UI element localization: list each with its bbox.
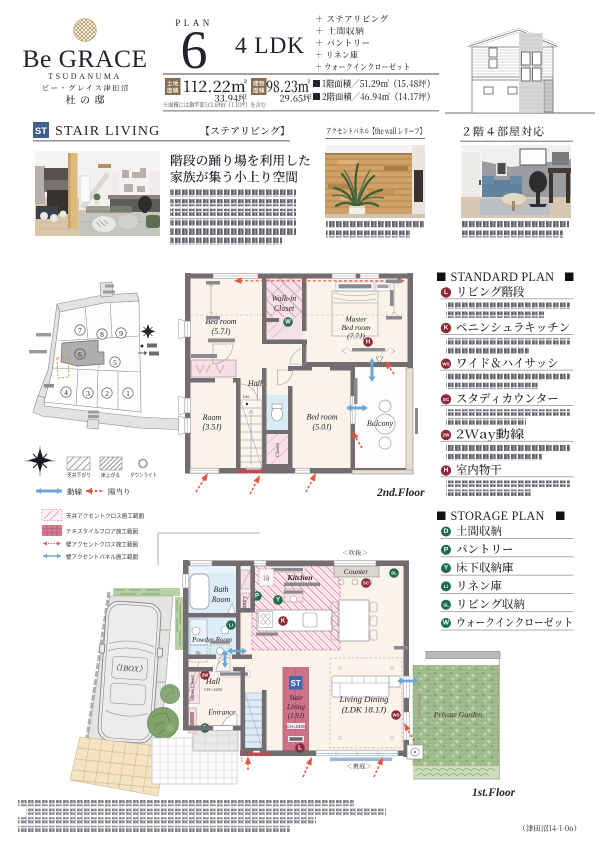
svg-text:W: W xyxy=(285,320,291,326)
svg-text:W: W xyxy=(443,620,450,627)
svg-text:3: 3 xyxy=(86,389,90,398)
svg-text:Stair: Stair xyxy=(289,694,303,702)
svg-text:4 LDK: 4 LDK xyxy=(235,33,305,59)
svg-text:STANDARD PLAN: STANDARD PLAN xyxy=(451,270,555,284)
svg-text:L: L xyxy=(444,289,448,296)
svg-text:8: 8 xyxy=(100,330,104,339)
svg-text:Be GRACE: Be GRACE xyxy=(22,44,147,73)
svg-text:SL: SL xyxy=(443,602,449,607)
svg-text:Private Garden: Private Garden xyxy=(433,710,483,719)
svg-text:P: P xyxy=(444,546,449,553)
svg-text:Hall: Hall xyxy=(247,379,263,388)
svg-text:Li: Li xyxy=(229,623,233,628)
svg-text:CH=2400: CH=2400 xyxy=(286,724,306,729)
svg-text:Balcony: Balcony xyxy=(367,419,394,428)
svg-text:(5.0J): (5.0J) xyxy=(313,423,332,432)
svg-text:(3.5J): (3.5J) xyxy=(203,423,222,432)
svg-text:Living Dining: Living Dining xyxy=(338,694,389,704)
svg-text:DN: DN xyxy=(243,394,249,399)
svg-text:Room: Room xyxy=(202,413,222,422)
svg-text:Counter: Counter xyxy=(344,567,369,576)
svg-text:Bath: Bath xyxy=(213,585,228,594)
svg-text:P: P xyxy=(255,594,259,600)
svg-text:SC: SC xyxy=(443,397,450,402)
svg-text:(7.7J): (7.7J) xyxy=(347,332,365,341)
svg-text:6: 6 xyxy=(181,20,208,80)
svg-text:STORAGE PLAN: STORAGE PLAN xyxy=(451,509,545,523)
svg-text:Shoes Closet: Shoes Closet xyxy=(191,675,196,701)
svg-text:5: 5 xyxy=(113,358,117,367)
svg-text:WS: WS xyxy=(393,713,400,718)
svg-text:2: 2 xyxy=(105,389,109,398)
svg-text:ST: ST xyxy=(35,126,47,137)
svg-text:2W: 2W xyxy=(202,673,208,678)
svg-text:SC: SC xyxy=(363,581,370,586)
svg-text:L: L xyxy=(298,746,302,752)
svg-text:Y: Y xyxy=(276,598,280,604)
svg-text:(LDK 18.1J): (LDK 18.1J) xyxy=(342,705,387,715)
svg-text:D: D xyxy=(444,528,449,535)
svg-text:Closet: Closet xyxy=(274,304,295,313)
svg-text:6: 6 xyxy=(78,350,82,359)
svg-text:4: 4 xyxy=(64,388,68,397)
svg-text:(1.9J): (1.9J) xyxy=(288,712,305,720)
svg-text:1st.Floor: 1st.Floor xyxy=(472,787,516,799)
svg-text:K: K xyxy=(444,325,449,332)
svg-text:STAIR LIVING: STAIR LIVING xyxy=(55,124,160,139)
svg-text:Living: Living xyxy=(286,703,305,711)
svg-text:Room: Room xyxy=(211,595,231,604)
svg-text:(5.7J): (5.7J) xyxy=(212,327,231,336)
svg-text:9: 9 xyxy=(119,329,123,338)
svg-text:2nd.Floor: 2nd.Floor xyxy=(376,487,425,499)
svg-text:H: H xyxy=(444,467,449,474)
svg-text:H: H xyxy=(366,340,370,346)
svg-text:ST: ST xyxy=(291,679,301,688)
svg-text:Li: Li xyxy=(444,584,448,589)
svg-text:CH=2450: CH=2450 xyxy=(204,687,223,692)
svg-text:7: 7 xyxy=(78,326,82,335)
svg-text:SL: SL xyxy=(391,571,397,576)
svg-text:TSUDANUMA: TSUDANUMA xyxy=(48,72,122,81)
svg-text:K: K xyxy=(281,619,286,625)
svg-text:Bed room: Bed room xyxy=(306,413,337,422)
svg-text:Walk-in: Walk-in xyxy=(272,294,297,303)
svg-text:Kitchen: Kitchen xyxy=(286,573,312,582)
svg-text:1: 1 xyxy=(126,389,130,398)
svg-text:Closet: Closet xyxy=(275,442,281,457)
svg-text:Y: Y xyxy=(444,565,449,572)
svg-text:2W: 2W xyxy=(443,433,451,438)
svg-text:WS: WS xyxy=(442,361,449,366)
